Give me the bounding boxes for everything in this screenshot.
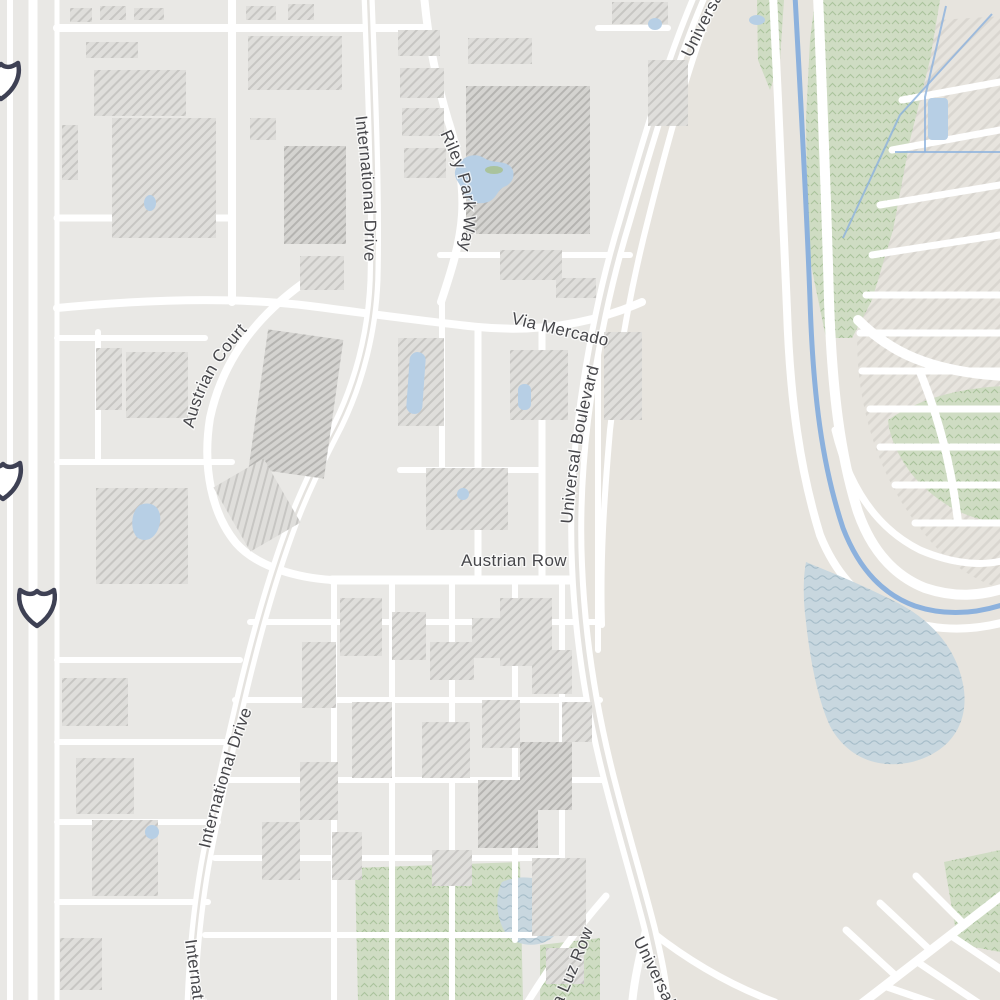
road-label-austrian-row: Austrian Row (461, 551, 567, 570)
map-canvas[interactable]: International Drive Riley Park Way Via M… (0, 0, 1000, 1000)
pond-islet (485, 166, 503, 174)
svg-text:Austrian Row: Austrian Row (461, 551, 567, 570)
map-viewport[interactable]: International Drive Riley Park Way Via M… (0, 0, 1000, 1000)
